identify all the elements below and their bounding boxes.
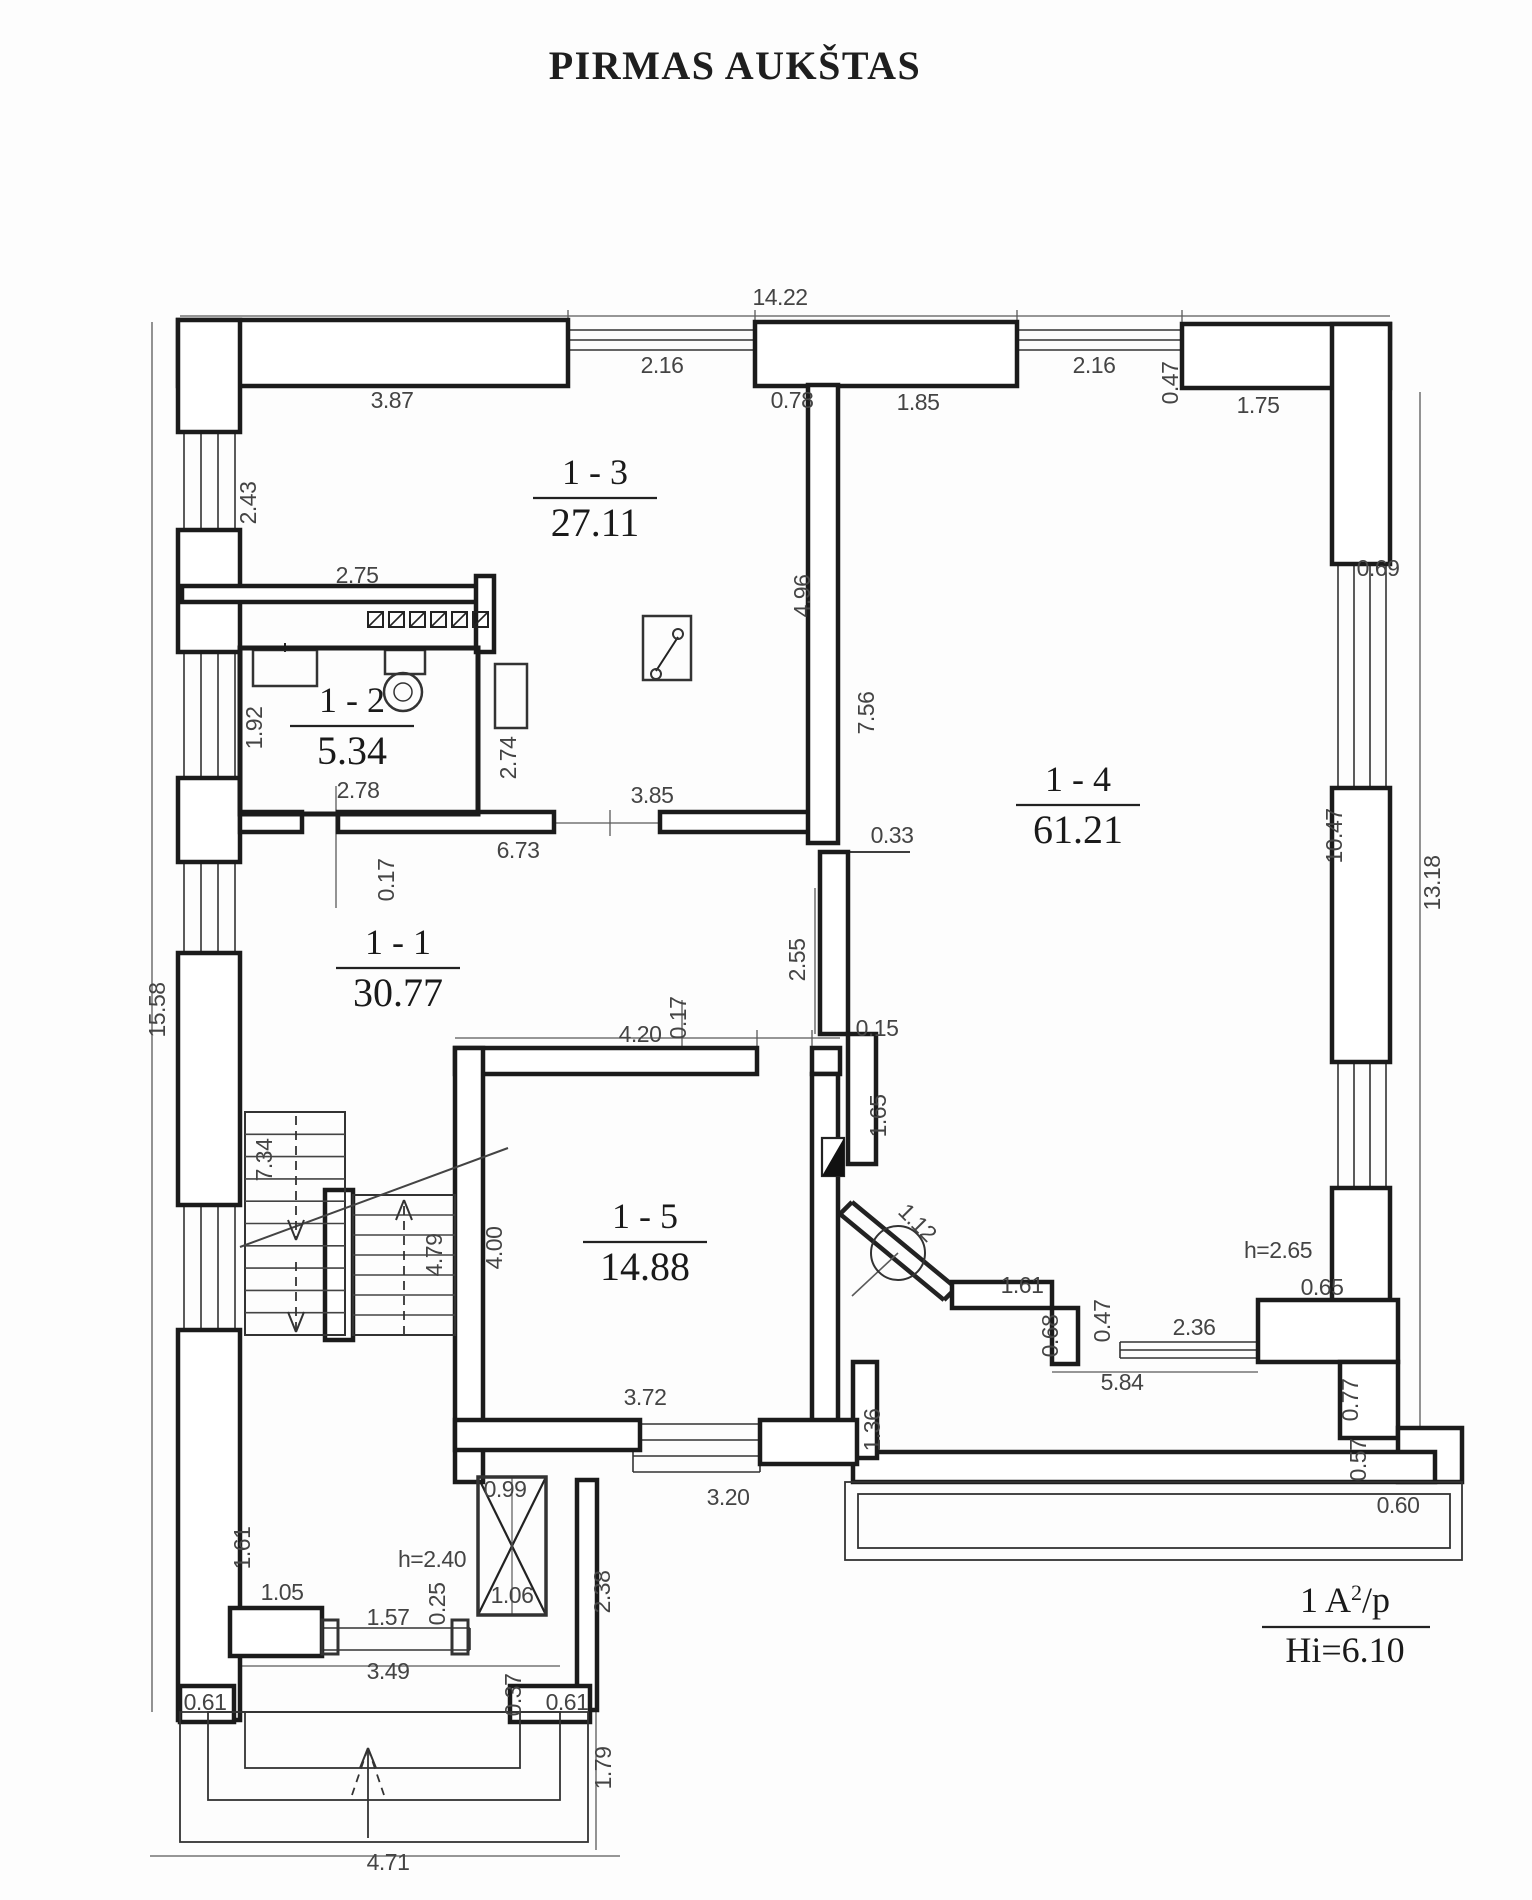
wall-band (755, 322, 1017, 386)
dimension-label: 4.20 (619, 1021, 662, 1047)
room-label: 1 - 514.88 (583, 1196, 707, 1289)
room-label: 1 - 461.21 (1016, 759, 1140, 852)
outline-rect (495, 664, 527, 728)
dimension-label: 0.17 (665, 997, 691, 1040)
dimension-label: h=2.65 (1244, 1237, 1312, 1263)
dimension-label: 0.33 (871, 822, 914, 848)
dimension-label: 4.00 (481, 1227, 507, 1270)
room-area: 5.34 (317, 728, 387, 773)
outline-rect (858, 1494, 1450, 1548)
arrow-head (296, 1312, 304, 1332)
hatch-diagonal (452, 612, 467, 627)
dimension-label: 0.60 (1377, 1492, 1420, 1518)
dimension-label: 1.79 (590, 1747, 616, 1790)
room-number: 1 - 4 (1045, 759, 1111, 799)
plan-line (656, 637, 678, 671)
arrow-head (404, 1200, 412, 1220)
dimension-label: 5.84 (1101, 1369, 1144, 1395)
room-area: 61.21 (1033, 807, 1123, 852)
wall-band (178, 320, 240, 432)
entrance-arrow-leg (352, 1748, 368, 1795)
floorplan-page: PIRMAS AUKŠTAS 14.222.160.781.852.160.47… (0, 0, 1532, 1900)
dimension-label: 0.47 (1157, 362, 1183, 405)
dimension-label: 1.61 (229, 1527, 255, 1570)
room-number: 1 - 2 (319, 680, 385, 720)
entrance-arrow-leg (368, 1748, 384, 1795)
dimension-label: 0.65 (1301, 1274, 1344, 1300)
dimension-label: 2.78 (337, 777, 380, 803)
room-label: 1 - 327.11 (533, 452, 657, 545)
dimension-label: 0.37 (500, 1674, 526, 1717)
wall-band (660, 812, 810, 832)
outline-rect (208, 1712, 560, 1800)
dimension-label: 0.77 (1337, 1379, 1363, 1422)
dimension-label: 0.47 (1089, 1300, 1115, 1343)
outline-rect (245, 1712, 520, 1768)
dimension-label: 7.56 (853, 692, 879, 735)
outline-rect (643, 616, 691, 680)
plan-line (840, 1202, 852, 1214)
dimension-label: 2.38 (589, 1571, 615, 1614)
wall-band (760, 1420, 857, 1464)
dimension-label: 0.17 (373, 859, 399, 902)
room-label: 1 - 25.34 (290, 680, 414, 773)
legend-line2: Hi=6.10 (1285, 1630, 1404, 1670)
plan-line (852, 1253, 898, 1296)
dimension-label: 3.85 (631, 782, 674, 808)
room-number: 1 - 1 (365, 922, 431, 962)
room-number: 1 - 5 (612, 1196, 678, 1236)
dimension-label: 0.78 (771, 387, 814, 413)
dimension-label: 4.71 (367, 1849, 410, 1875)
arrow-head (396, 1200, 404, 1220)
outline-rect (253, 650, 317, 686)
dimension-label: 2.16 (1073, 352, 1116, 378)
dimension-label: 3.72 (624, 1384, 667, 1410)
floor-plan-drawing: 14.222.160.781.852.160.471.753.872.432.7… (0, 0, 1532, 1900)
wall-band (1332, 324, 1390, 564)
dimension-label: 15.58 (144, 982, 170, 1037)
dimension-label: 2.16 (641, 352, 684, 378)
dimension-label: 4.96 (789, 575, 815, 618)
dimension-label: h=2.40 (398, 1546, 466, 1572)
wall-band (455, 1048, 757, 1074)
room-number: 1 - 3 (562, 452, 628, 492)
dimension-label: 13.18 (1419, 855, 1445, 910)
dimension-label: 0.15 (856, 1015, 899, 1041)
dimension-label: 0.99 (484, 1476, 527, 1502)
room-area: 30.77 (353, 970, 443, 1015)
dimension-label: 1.57 (367, 1604, 410, 1630)
dimension-label: 2.55 (784, 939, 810, 982)
dimension-label: 2.75 (336, 562, 379, 588)
dimension-label: 7.34 (251, 1138, 277, 1181)
hatch-diagonal (431, 612, 446, 627)
dimension-lines-layer (150, 310, 1420, 1856)
dimension-label: 1.65 (865, 1095, 891, 1138)
dimension-label: 1.05 (261, 1579, 304, 1605)
dimension-label: 0.61 (184, 1689, 227, 1715)
outline-rect (385, 650, 425, 674)
dimension-label: 2.36 (1173, 1314, 1216, 1340)
dimension-label: 1.06 (491, 1582, 534, 1608)
wall-band (178, 778, 240, 862)
hatch-diagonal (389, 612, 404, 627)
dimension-label: 3.87 (371, 387, 414, 413)
dimension-label: 10.47 (1321, 808, 1347, 863)
dimension-label: 0.25 (424, 1583, 450, 1626)
dimension-label: 1.85 (897, 389, 940, 415)
hatch-diagonal (410, 612, 425, 627)
wall-band (230, 1608, 322, 1656)
wall-band (325, 1190, 353, 1340)
wall-band (178, 1330, 240, 1720)
dimension-label: 1.75 (1237, 392, 1280, 418)
wall-band (1258, 1300, 1398, 1362)
dimension-label: 4.79 (421, 1234, 447, 1277)
dimension-label: 14.22 (752, 284, 807, 310)
detail-circle (394, 683, 412, 701)
wall-band (820, 852, 848, 1034)
room-label: 1 - 130.77 (336, 922, 460, 1015)
dimension-label: 0.61 (546, 1689, 589, 1715)
dimension-label: 2.74 (495, 736, 521, 779)
room-area: 14.88 (600, 1244, 690, 1289)
dimension-label: 0.69 (1357, 555, 1400, 581)
wall-band (178, 953, 240, 1205)
dimension-label: 1.36 (859, 1409, 885, 1452)
wall-band (455, 1048, 483, 1482)
dimension-label: 3.49 (367, 1658, 410, 1684)
outline-rect (322, 1620, 338, 1654)
wall-band (455, 1420, 640, 1450)
room-area: 27.11 (551, 500, 640, 545)
dimension-label: 6.73 (497, 837, 540, 863)
dimension-label: 0.57 (1345, 1439, 1371, 1482)
wall-band (182, 586, 492, 602)
walls-layer (178, 320, 1462, 1722)
dimension-label: 3.20 (707, 1484, 750, 1510)
wall-band (812, 1048, 840, 1074)
outline-rect (180, 1712, 588, 1842)
detail-circle (384, 673, 422, 711)
outline-rect (452, 1620, 468, 1654)
legend: 1 A2/pHi=6.10 (1262, 1580, 1430, 1671)
dimension-label: 2.43 (235, 482, 261, 525)
dimension-label: 0.68 (1037, 1315, 1063, 1358)
dimension-label: 1.92 (241, 707, 267, 750)
hatch-diagonal (368, 612, 383, 627)
wall-band (812, 1074, 838, 1422)
arrow-head (288, 1312, 296, 1332)
dimension-label: 1.61 (1001, 1272, 1044, 1298)
legend-line1: 1 A2/p (1300, 1580, 1390, 1621)
